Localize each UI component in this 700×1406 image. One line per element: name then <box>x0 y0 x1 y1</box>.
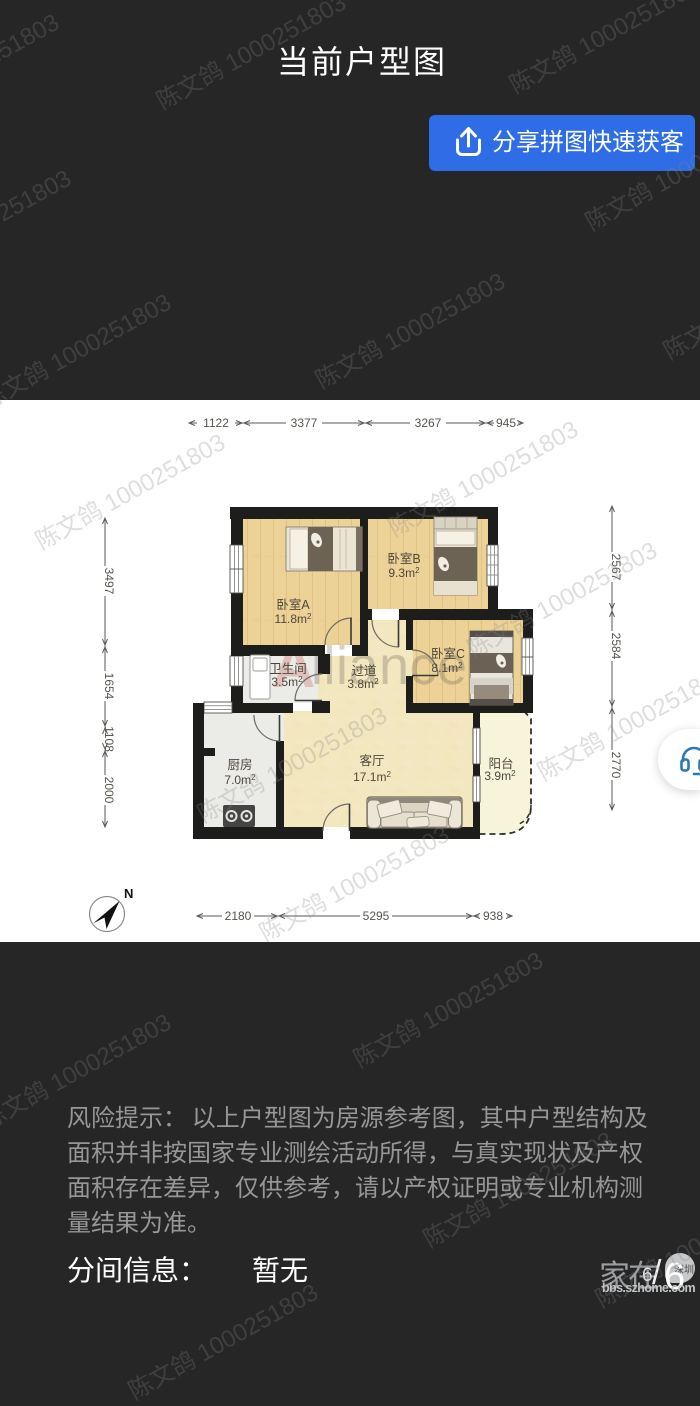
svg-text:1108: 1108 <box>102 726 116 752</box>
svg-text:2584: 2584 <box>609 633 623 660</box>
svg-text:过道: 过道 <box>351 664 377 678</box>
svg-text:3267: 3267 <box>415 416 442 430</box>
svg-text:卧室C: 卧室C <box>431 646 465 661</box>
svg-text:11.8m2: 11.8m2 <box>275 612 312 626</box>
svg-text:2770: 2770 <box>609 752 623 779</box>
svg-text:938: 938 <box>483 909 503 923</box>
svg-text:1122: 1122 <box>203 416 229 430</box>
svg-text:2567: 2567 <box>609 554 623 581</box>
svg-text:客厅: 客厅 <box>359 753 384 768</box>
svg-text:2000: 2000 <box>102 777 116 804</box>
svg-text:厨房: 厨房 <box>227 757 252 772</box>
svg-text:N: N <box>124 886 133 901</box>
svg-text:5295: 5295 <box>363 909 390 923</box>
svg-text:1654: 1654 <box>102 673 116 700</box>
svg-text:卧室B: 卧室B <box>387 551 420 566</box>
svg-text:17.1m2: 17.1m2 <box>353 770 391 784</box>
svg-text:2180: 2180 <box>225 909 252 923</box>
svg-text:3497: 3497 <box>102 568 116 595</box>
svg-text:卧室A: 卧室A <box>276 597 310 612</box>
svg-text:3377: 3377 <box>291 416 318 430</box>
svg-text:945: 945 <box>496 416 516 430</box>
svg-text:卫生间: 卫生间 <box>269 662 307 676</box>
